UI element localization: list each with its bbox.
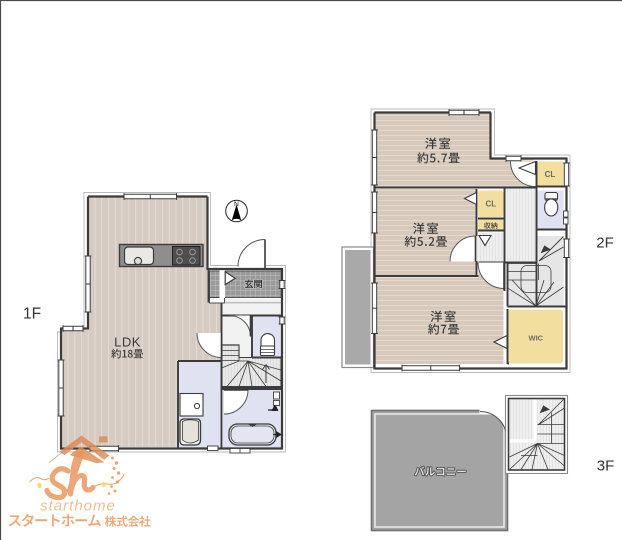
- svg-text:2F: 2F: [596, 235, 614, 252]
- svg-text:LDK: LDK: [114, 335, 141, 350]
- svg-text:3F: 3F: [597, 458, 615, 475]
- svg-text:starthome: starthome: [40, 498, 116, 515]
- svg-text:1F: 1F: [23, 306, 41, 323]
- svg-text:N: N: [234, 201, 239, 208]
- svg-text:WIC: WIC: [529, 334, 544, 343]
- svg-text:CL: CL: [485, 200, 496, 209]
- svg-text:CL: CL: [545, 170, 556, 179]
